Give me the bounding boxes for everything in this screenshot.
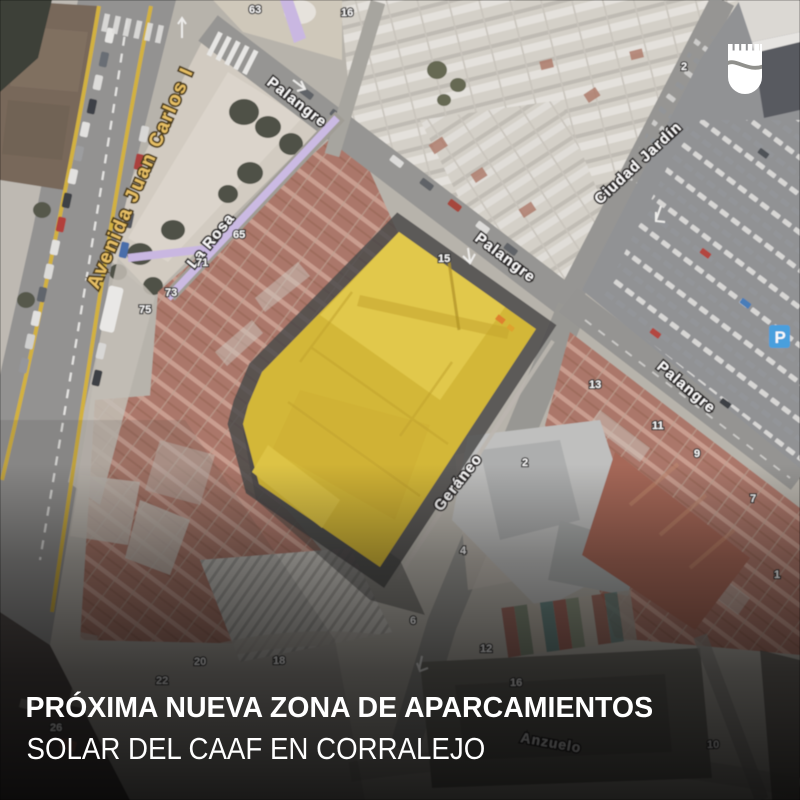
svg-text:PRÓXIMA NUEVA ZONA DE APARCAMI: PRÓXIMA NUEVA ZONA DE APARCAMIENTOS (26, 690, 654, 724)
svg-text:SOLAR DEL CAAF EN CORRALEJO: SOLAR DEL CAAF EN CORRALEJO (27, 732, 486, 767)
